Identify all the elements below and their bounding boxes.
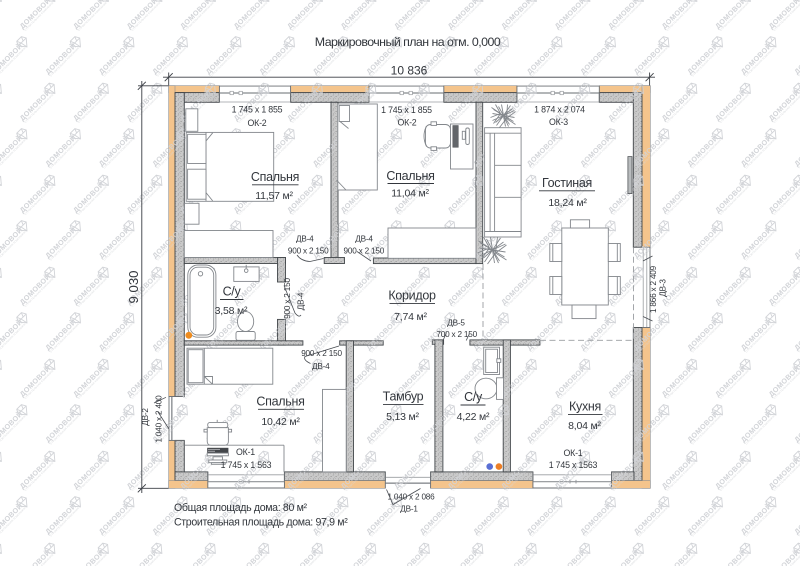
svg-text:Тамбур: Тамбур: [383, 390, 424, 404]
svg-text:11,57 м²: 11,57 м²: [255, 190, 293, 202]
svg-text:4,22 м²: 4,22 м²: [457, 411, 490, 423]
svg-text:Коридор: Коридор: [388, 289, 436, 303]
svg-text:Спальня: Спальня: [256, 395, 304, 409]
svg-text:ДВ-1: ДВ-1: [400, 505, 418, 514]
svg-text:1 866 х 2 409: 1 866 х 2 409: [649, 265, 658, 313]
svg-text:Маркировочный план на отм. 0,0: Маркировочный план на отм. 0,000: [315, 35, 501, 49]
svg-text:Спальня: Спальня: [251, 170, 299, 184]
svg-text:ДВ-4: ДВ-4: [355, 234, 373, 243]
svg-text:С/у: С/у: [464, 390, 483, 404]
svg-text:10 836: 10 836: [391, 64, 428, 78]
svg-text:3,58 м²: 3,58 м²: [215, 305, 248, 317]
svg-text:ДВ-5: ДВ-5: [447, 319, 465, 328]
svg-text:900 х 2 150: 900 х 2 150: [301, 349, 342, 358]
svg-text:ДВ-4: ДВ-4: [296, 234, 314, 243]
svg-text:18,24 м²: 18,24 м²: [548, 197, 587, 209]
svg-text:ДВ-2: ДВ-2: [141, 408, 150, 426]
svg-text:ОК-1: ОК-1: [236, 447, 255, 457]
svg-text:900 х 2 150: 900 х 2 150: [283, 278, 292, 319]
svg-text:7,74 м²: 7,74 м²: [394, 311, 427, 323]
svg-text:1 745 х 1563: 1 745 х 1563: [549, 460, 598, 470]
svg-text:Спальня: Спальня: [386, 169, 434, 183]
svg-text:10,42 м²: 10,42 м²: [261, 416, 300, 428]
svg-text:1 874 х 2 074: 1 874 х 2 074: [534, 105, 585, 115]
svg-text:1 745 х 1 855: 1 745 х 1 855: [232, 105, 283, 115]
svg-text:С/у: С/у: [223, 285, 242, 299]
svg-text:1 745 х 1 563: 1 745 х 1 563: [221, 460, 272, 470]
svg-text:Кухня: Кухня: [569, 400, 601, 414]
svg-text:1 745 х 1 855: 1 745 х 1 855: [381, 105, 432, 115]
svg-text:Общая площадь дома: 80 м²: Общая площадь дома: 80 м²: [174, 502, 308, 514]
svg-text:11,04 м²: 11,04 м²: [391, 188, 429, 200]
svg-text:9 030: 9 030: [126, 270, 141, 303]
svg-text:8,04 м²: 8,04 м²: [568, 420, 601, 432]
svg-text:5,13 м²: 5,13 м²: [386, 411, 419, 423]
svg-text:700 х 2 150: 700 х 2 150: [436, 330, 477, 339]
svg-text:ОК-2: ОК-2: [248, 118, 267, 128]
svg-text:ДВ-4: ДВ-4: [312, 362, 330, 371]
svg-text:ДВ-4: ДВ-4: [297, 292, 306, 310]
svg-text:ОК-2: ОК-2: [398, 118, 417, 128]
svg-text:ОК-3: ОК-3: [549, 117, 568, 127]
svg-text:900 х 2 150: 900 х 2 150: [344, 247, 385, 256]
svg-text:ДВ-3: ДВ-3: [659, 279, 668, 297]
svg-text:Строительная площадь дома: 97,: Строительная площадь дома: 97,9 м²: [174, 517, 348, 529]
svg-text:ОК-1: ОК-1: [564, 448, 583, 458]
svg-text:Гостиная: Гостиная: [542, 176, 592, 190]
svg-text:900 х 2 150: 900 х 2 150: [288, 247, 329, 256]
